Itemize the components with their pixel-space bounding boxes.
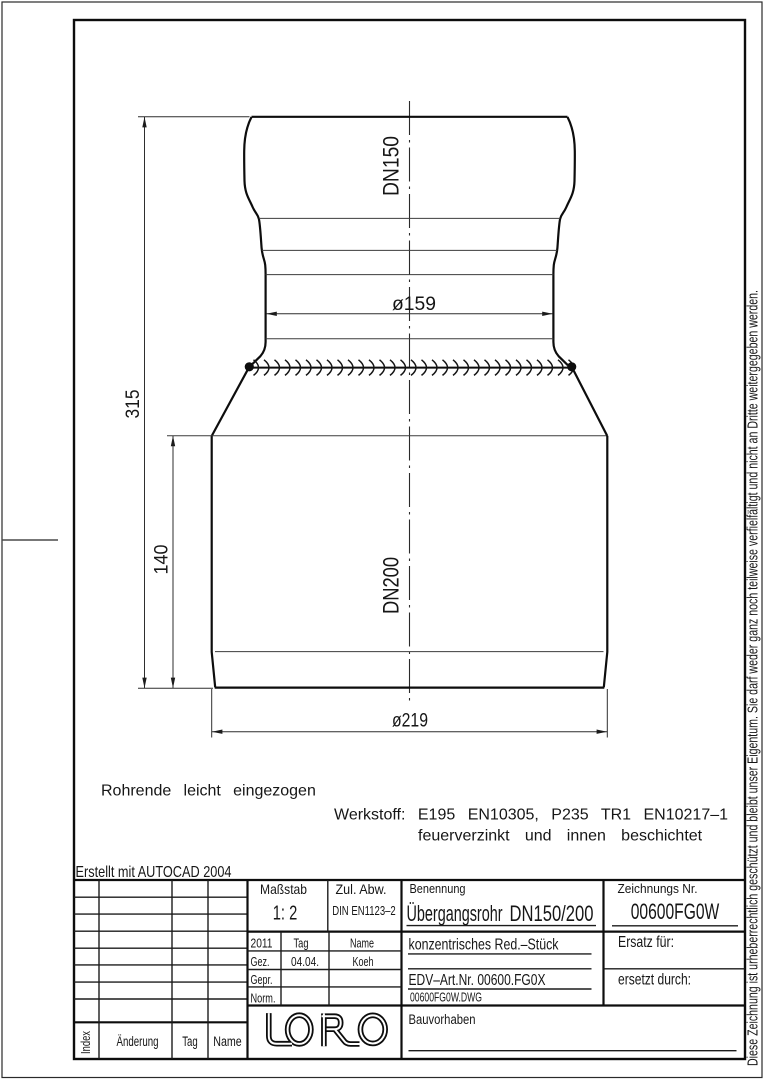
svg-text:Norm.: Norm. [251, 991, 276, 1005]
svg-text:Tag: Tag [182, 1034, 198, 1049]
svg-text:Gez.: Gez. [251, 955, 270, 969]
svg-text:Rohrende leicht eingezogen: Rohrende leicht eingezogen [101, 782, 316, 799]
svg-text:140: 140 [152, 545, 173, 575]
svg-text:Benennung: Benennung [410, 881, 466, 896]
svg-text:EDV–Art.Nr. 00600.FG0X: EDV–Art.Nr. 00600.FG0X [409, 972, 546, 989]
svg-text:ersetzt durch:: ersetzt durch: [618, 972, 691, 989]
svg-text:DN200: DN200 [379, 557, 404, 614]
svg-text:konzentrisches Red.–Stück: konzentrisches Red.–Stück [409, 937, 560, 954]
svg-text:Tag: Tag [294, 937, 309, 951]
svg-text:Name: Name [213, 1034, 242, 1049]
svg-text:Bauvorhaben: Bauvorhaben [409, 1012, 476, 1027]
svg-text:ø219: ø219 [392, 711, 428, 732]
svg-text:Ersatz für:: Ersatz für: [618, 934, 674, 951]
svg-text:Übergangsrohr: Übergangsrohr [407, 901, 503, 926]
svg-text:DN150/200: DN150/200 [510, 901, 594, 926]
svg-text:DN150: DN150 [379, 136, 404, 196]
svg-text:Index: Index [79, 1030, 93, 1054]
svg-text:Maßstab: Maßstab [260, 881, 307, 897]
svg-text:Diese Zeichnung ist urheberrec: Diese Zeichnung ist urheberrechtlich ges… [746, 290, 762, 1066]
svg-text:Koeh: Koeh [353, 955, 374, 969]
svg-text:2011: 2011 [251, 937, 273, 951]
svg-text:315: 315 [123, 390, 144, 419]
svg-text:Werkstoff: E195 EN10305, P235: Werkstoff: E195 EN10305, P235 TR1 EN1021… [334, 806, 728, 823]
svg-text:Zul. Abw.: Zul. Abw. [336, 881, 387, 897]
svg-text:feuerverzinkt und innen beschi: feuerverzinkt und innen beschichtet [418, 827, 703, 844]
svg-text:Erstellt mit AUTOCAD 2004: Erstellt mit AUTOCAD 2004 [76, 864, 232, 881]
svg-text:Zeichnungs Nr.: Zeichnungs Nr. [618, 881, 698, 896]
svg-text:Gepr.: Gepr. [251, 973, 273, 987]
svg-text:Name: Name [350, 937, 374, 951]
svg-text:04.04.: 04.04. [291, 955, 319, 969]
svg-text:00600FG0W.DWG: 00600FG0W.DWG [410, 991, 482, 1005]
svg-text:00600FG0W: 00600FG0W [631, 899, 720, 924]
svg-text:Änderung: Änderung [117, 1034, 159, 1049]
svg-text:1: 2: 1: 2 [273, 903, 298, 925]
svg-text:DIN EN1123–2: DIN EN1123–2 [332, 903, 396, 918]
svg-text:ø159: ø159 [392, 294, 436, 315]
